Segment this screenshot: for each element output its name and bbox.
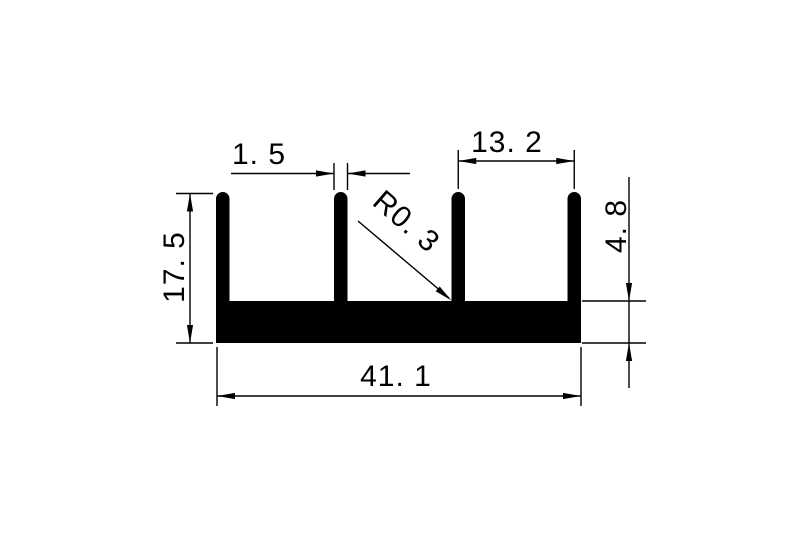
dim-overall-height: 17. 5 [158,194,213,344]
arrowhead-icon [626,343,632,361]
drawing-canvas: 1. 5 13. 2 17. 5 4. 8 [0,0,800,540]
dim-fillet-radius-label: R0. 3 [366,184,446,259]
dim-fin-thickness-label: 1. 5 [232,138,286,171]
arrowhead-icon [187,194,193,212]
dim-fin-thickness: 1. 5 [231,138,410,190]
dim-base-thickness: 4. 8 [582,177,646,388]
arrowhead-icon [556,158,574,164]
arrowhead-icon [626,283,632,301]
dim-base-thickness-label: 4. 8 [600,199,633,253]
dim-overall-width: 41. 1 [217,347,581,406]
arrowhead-icon [563,393,581,399]
heatsink-profile-drawing: 1. 5 13. 2 17. 5 4. 8 [0,0,800,540]
arrowhead-icon [436,287,454,303]
arrowhead-icon [217,393,235,399]
arrowhead-icon [316,170,334,176]
dim-fillet-radius: R0. 3 [358,184,453,303]
dim-fin-pitch: 13. 2 [458,126,574,189]
dim-overall-height-label: 17. 5 [158,231,191,303]
arrowhead-icon [348,170,366,176]
dim-fin-pitch-label: 13. 2 [471,126,543,159]
arrowhead-icon [187,325,193,343]
dim-overall-width-label: 41. 1 [360,360,432,393]
